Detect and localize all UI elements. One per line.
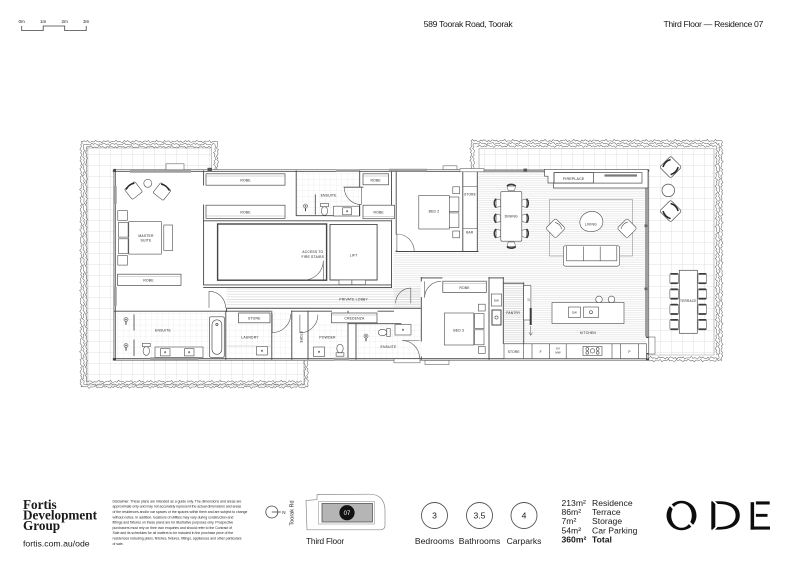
svg-text:589 Toorak Road, Toorak: 589 Toorak Road, Toorak [424, 19, 514, 29]
svg-text:BED 2: BED 2 [429, 210, 440, 214]
svg-text:Bedrooms: Bedrooms [415, 536, 454, 546]
svg-text:Bathrooms: Bathrooms [459, 536, 501, 546]
svg-text:3.5: 3.5 [474, 511, 486, 521]
svg-text:LIFT: LIFT [350, 254, 358, 258]
svg-text:STORE: STORE [299, 331, 303, 343]
svg-text:ROBE: ROBE [459, 286, 470, 290]
svg-text:of the residences and/or car s: of the residences and/or car spaces or t… [113, 510, 248, 514]
svg-text:0m: 0m [19, 19, 26, 24]
svg-text:P: P [628, 350, 630, 354]
svg-text:KITCHEN: KITCHEN [580, 331, 597, 335]
svg-text:360m²: 360m² [562, 535, 587, 545]
svg-text:Third Floor — Residence 07: Third Floor — Residence 07 [663, 19, 763, 29]
svg-text:STORE: STORE [464, 193, 476, 197]
svg-text:of sale.: of sale. [113, 542, 124, 546]
svg-text:MASTER: MASTER [138, 234, 154, 238]
svg-text:approximate only and may not a: approximate only and may not accurately … [113, 505, 242, 509]
svg-text:07: 07 [344, 511, 351, 517]
svg-text:BAR: BAR [466, 231, 474, 235]
svg-text:fortis.com.au/ode: fortis.com.au/ode [23, 539, 90, 549]
svg-text:3: 3 [432, 511, 437, 521]
svg-text:BED 3: BED 3 [453, 329, 464, 333]
svg-text:MW: MW [555, 350, 561, 354]
svg-text:Group: Group [23, 518, 60, 533]
svg-text:CREDENZA: CREDENZA [344, 317, 365, 321]
svg-text:SUITE: SUITE [141, 239, 152, 243]
svg-text:1m: 1m [40, 19, 47, 24]
svg-text:without notice. In addition, l: without notice. In addition, locations o… [113, 515, 234, 519]
svg-text:ROBE: ROBE [374, 211, 385, 215]
svg-text:4: 4 [522, 511, 527, 521]
svg-text:ACCESS TO: ACCESS TO [302, 250, 323, 254]
svg-text:N: N [282, 510, 285, 515]
svg-text:DW: DW [494, 299, 499, 303]
svg-text:STORE: STORE [248, 317, 261, 321]
svg-text:Total: Total [592, 535, 612, 545]
svg-text:Disclaimer: These plans are in: Disclaimer: These plans are intended as … [113, 499, 242, 503]
svg-text:3m: 3m [83, 19, 90, 24]
svg-text:LIVING: LIVING [585, 223, 597, 227]
svg-text:FIRE STAIRS: FIRE STAIRS [301, 255, 324, 259]
svg-text:ROBE: ROBE [371, 178, 382, 182]
svg-text:ROBE: ROBE [240, 211, 251, 215]
svg-text:ENSUITE: ENSUITE [155, 329, 172, 333]
svg-text:Third Floor: Third Floor [306, 536, 344, 546]
svg-text:ST: ST [526, 298, 530, 302]
svg-text:POWDER: POWDER [319, 336, 336, 340]
svg-text:Carparks: Carparks [507, 536, 542, 546]
svg-text:PANTRY: PANTRY [506, 311, 521, 315]
svg-text:fittings and fixtures on these: fittings and fixtures on these plans are… [113, 521, 234, 525]
svg-text:purchasers must rely on their: purchasers must rely on their own enquir… [113, 526, 233, 530]
svg-text:2m: 2m [62, 19, 69, 24]
svg-text:LAUNDRY: LAUNDRY [241, 336, 259, 340]
svg-text:Toorak Rd: Toorak Rd [290, 500, 296, 525]
svg-text:FIREPLACE: FIREPLACE [563, 177, 585, 181]
svg-text:F: F [540, 350, 542, 354]
svg-text:DW: DW [572, 311, 577, 315]
svg-text:ROBE: ROBE [240, 178, 251, 182]
svg-text:ENSUITE: ENSUITE [381, 345, 398, 349]
svg-text:ROBE: ROBE [143, 279, 154, 283]
svg-text:ENSUITE: ENSUITE [321, 193, 338, 197]
svg-text:STORE: STORE [508, 350, 521, 354]
svg-text:residences including plans, fi: residences including plans, finishes, fi… [113, 537, 242, 541]
svg-text:DINING: DINING [505, 214, 518, 218]
svg-text:PRIVATE LOBBY: PRIVATE LOBBY [339, 298, 368, 302]
svg-text:Sale and its schedules for all: Sale and its schedules for all matters t… [113, 531, 234, 535]
svg-text:TERRACE: TERRACE [680, 299, 697, 303]
